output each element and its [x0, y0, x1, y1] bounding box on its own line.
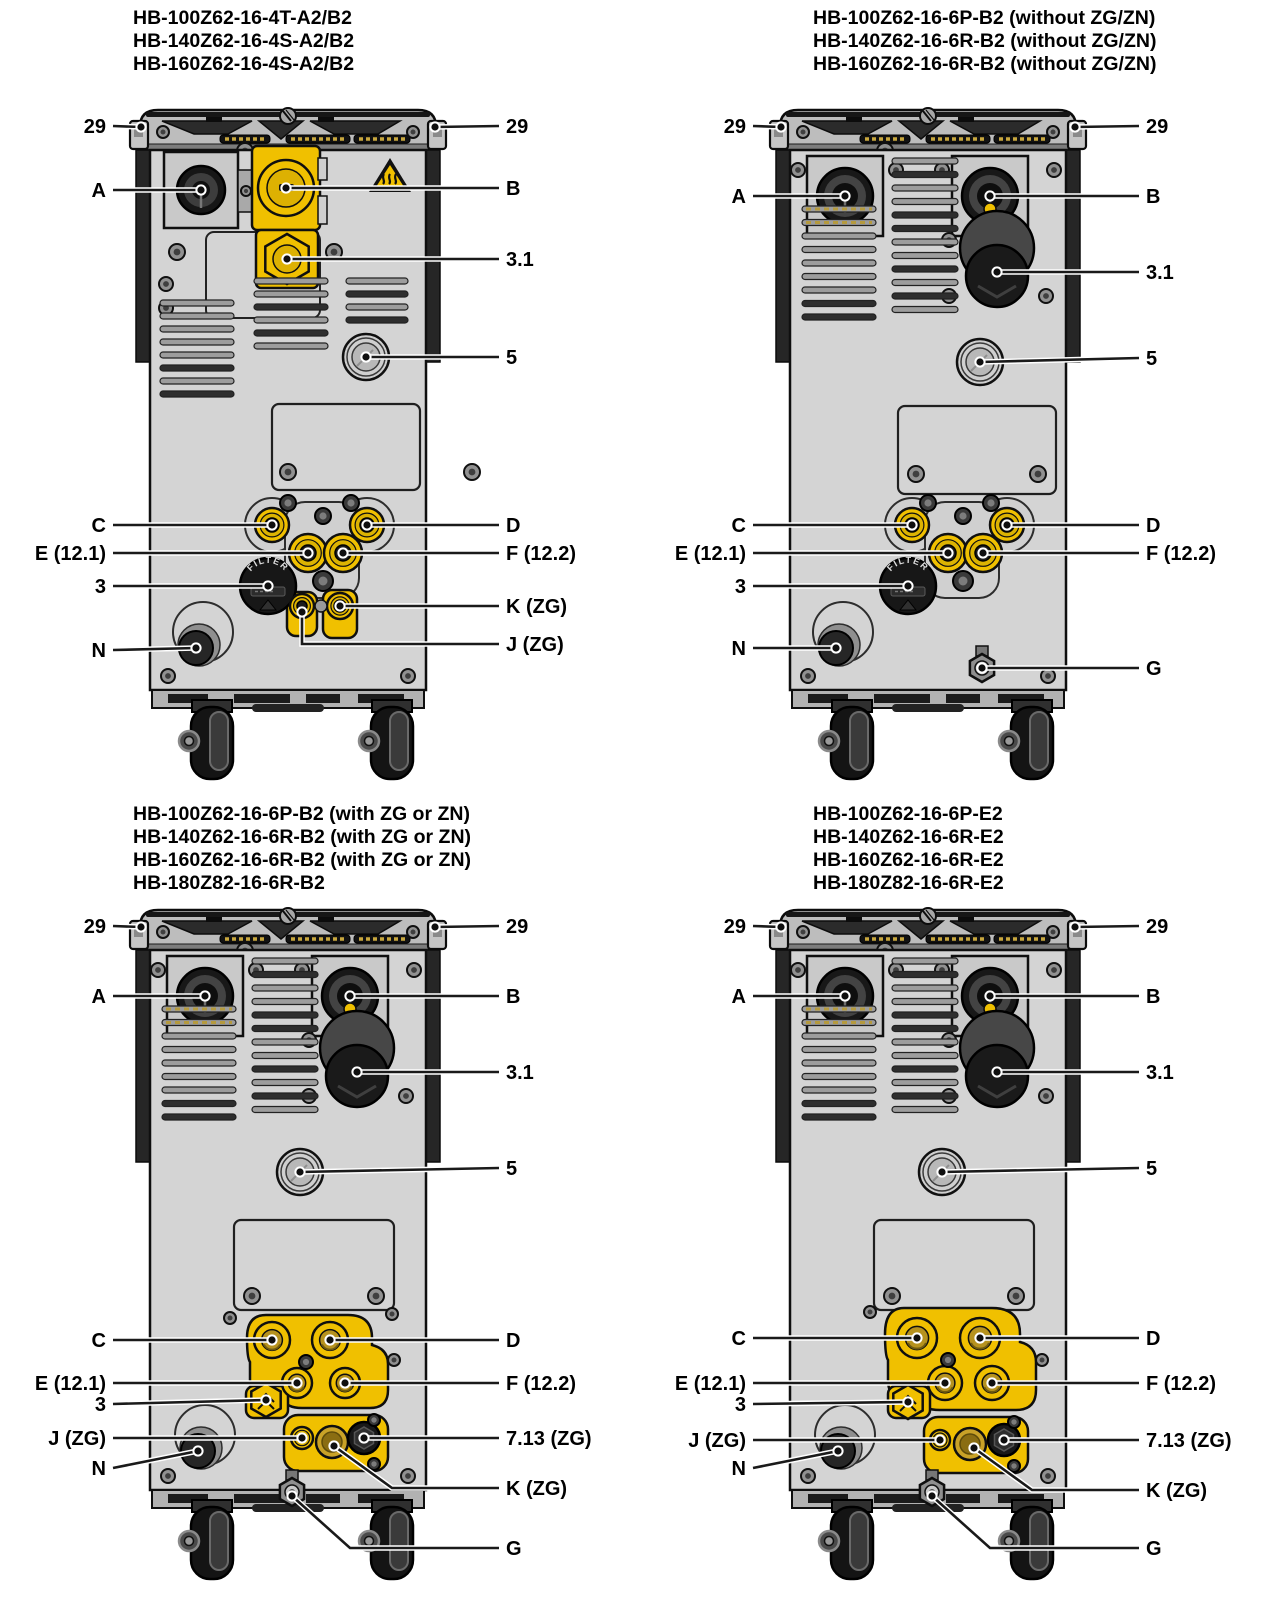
callout-label: A: [732, 986, 746, 1008]
caster-left: [819, 1500, 873, 1579]
callout-dot: [940, 1378, 949, 1387]
caster-right: [999, 1500, 1053, 1579]
callout-dot: [200, 991, 209, 1000]
side-wall-left: [776, 150, 790, 362]
callout-label: 29: [506, 116, 528, 138]
callout-label: K (ZG): [1146, 1480, 1207, 1502]
caster-left: [179, 1500, 233, 1579]
side-wall-right: [1066, 950, 1080, 1162]
callout-label: G: [1146, 658, 1162, 680]
machine-diagram-top-right: FILTER2929AB3.15CDE (12.1)F (12.2)3NG: [640, 0, 1280, 800]
model-title-block: HB-100Z62-16-6P-E2HB-140Z62-16-6R-E2HB-1…: [813, 803, 1004, 895]
title-line: HB-160Z62-16-6R-B2 (with ZG or ZN): [133, 849, 471, 872]
callout-dot: [282, 254, 291, 263]
caster-left: [819, 700, 873, 779]
callout-label: E (12.1): [35, 1373, 106, 1395]
callout-dot: [292, 1378, 301, 1387]
side-wall-left: [776, 950, 790, 1162]
callout-dot: [352, 1067, 361, 1076]
callout-label: B: [506, 178, 520, 200]
caster-right: [999, 700, 1053, 779]
callout-label: E (12.1): [675, 1373, 746, 1395]
title-line: HB-180Z82-16-6R-E2: [813, 872, 1004, 895]
callout-label: 29: [1146, 116, 1168, 138]
callout-label: A: [732, 186, 746, 208]
access-panel: [234, 1220, 394, 1310]
callout-dot: [978, 548, 987, 557]
callout-dot: [840, 191, 849, 200]
panel-bottom-right: 2929AB3.15CDE (12.1)F (12.2)3J (ZG)7.13 …: [640, 800, 1280, 1600]
callout-dot: [430, 922, 439, 931]
title-line: HB-160Z62-16-6R-B2 (without ZG/ZN): [813, 53, 1156, 76]
title-line: HB-140Z62-16-6R-B2 (with ZG or ZN): [133, 826, 471, 849]
callout-label: C: [92, 515, 106, 537]
callout-label: 3.1: [1146, 262, 1174, 284]
plug-3-1: [960, 1011, 1034, 1107]
callout-label: N: [732, 1458, 746, 1480]
callout-dot: [975, 1333, 984, 1342]
model-title-block: HB-100Z62-16-4T-A2/B2HB-140Z62-16-4S-A2/…: [133, 7, 354, 76]
title-line: HB-160Z62-16-6R-E2: [813, 849, 1004, 872]
title-line: HB-140Z62-16-4S-A2/B2: [133, 30, 354, 53]
vent-grille-left: [802, 1006, 876, 1120]
machine-diagram-bottom-left: 2929AB3.15CDE (12.1)F (12.2)3J (ZG)7.13 …: [0, 800, 640, 1600]
callout-label: 3: [735, 576, 746, 598]
manual-diagram-page: FILTER2929AB3.15CDE (12.1)F (12.2)3K (ZG…: [0, 0, 1280, 1600]
callout-label: J (ZG): [506, 634, 564, 656]
callout-dot: [263, 581, 272, 590]
title-line: HB-100Z62-16-6P-B2 (without ZG/ZN): [813, 7, 1156, 30]
top-cap: [780, 908, 1076, 950]
callout-dot: [987, 1378, 996, 1387]
callout-label: 3: [735, 1394, 746, 1416]
access-panel: [898, 406, 1056, 494]
top-cap: [140, 108, 436, 150]
machine-diagram-top-left: FILTER2929AB3.15CDE (12.1)F (12.2)3K (ZG…: [0, 0, 640, 800]
callout-dot: [1070, 122, 1079, 131]
machine-rear-view: [130, 908, 446, 1579]
machine-rear-view: FILTER: [130, 108, 480, 779]
callout-dot: [776, 122, 785, 131]
callout-dot: [977, 663, 986, 672]
callout-label: 29: [724, 916, 746, 938]
title-line: HB-100Z62-16-6P-E2: [813, 803, 1004, 826]
title-line: HB-140Z62-16-6R-B2 (without ZG/ZN): [813, 30, 1156, 53]
callout-dot: [833, 1446, 842, 1455]
callout-label: 29: [724, 116, 746, 138]
callout-dot: [985, 191, 994, 200]
plug-3-1: [320, 1011, 394, 1107]
title-line: HB-160Z62-16-4S-A2/B2: [133, 53, 354, 76]
callout-dot: [287, 1491, 296, 1500]
model-title-block: HB-100Z62-16-6P-B2 (with ZG or ZN)HB-140…: [133, 803, 471, 895]
callout-dot: [992, 267, 1001, 276]
title-line: HB-100Z62-16-4T-A2/B2: [133, 7, 354, 30]
callout-label: 29: [84, 116, 106, 138]
callout-label: E (12.1): [675, 543, 746, 565]
callout-dot: [329, 1441, 338, 1450]
callout-label: 5: [506, 1158, 517, 1180]
callout-label: N: [92, 640, 106, 662]
callout-dot: [937, 1167, 946, 1176]
access-panel: [874, 1220, 1034, 1310]
callout-dot: [840, 991, 849, 1000]
callout-label: 5: [1146, 348, 1157, 370]
caster-right: [359, 700, 413, 779]
callout-label: 3.1: [1146, 1062, 1174, 1084]
plug-3-1: [960, 211, 1034, 307]
callout-label: D: [506, 1330, 520, 1352]
callout-label: K (ZG): [506, 1478, 567, 1500]
callout-label: J (ZG): [688, 1430, 746, 1452]
callout-label: D: [1146, 1328, 1160, 1350]
callout-label: D: [506, 515, 520, 537]
callout-dot: [999, 1435, 1008, 1444]
callout-dot: [903, 1397, 912, 1406]
callout-dot: [430, 122, 439, 131]
callout-label: F (12.2): [506, 1373, 576, 1395]
callout-label: 29: [506, 916, 528, 938]
callout-label: J (ZG): [48, 1428, 106, 1450]
callout-dot: [295, 1167, 304, 1176]
callout-label: 3: [95, 1394, 106, 1416]
machine-rear-view: [770, 908, 1086, 1579]
callout-label: F (12.2): [506, 543, 576, 565]
side-wall-left: [136, 150, 150, 362]
callout-dot: [193, 1446, 202, 1455]
callout-dot: [335, 601, 344, 610]
callout-dot: [196, 185, 205, 194]
access-panel: [272, 404, 480, 490]
callout-dot: [191, 643, 200, 652]
callout-dot: [340, 1378, 349, 1387]
callout-label: 3.1: [506, 1062, 534, 1084]
callout-dot: [325, 1335, 334, 1344]
callout-dot: [927, 1491, 936, 1500]
callout-label: B: [506, 986, 520, 1008]
callout-label: F (12.2): [1146, 1373, 1216, 1395]
callout-dot: [907, 520, 916, 529]
callout-dot: [1002, 520, 1011, 529]
callout-dot: [345, 991, 354, 1000]
callout-label: 3.1: [506, 249, 534, 271]
callout-dot: [361, 352, 370, 361]
callout-label: C: [732, 1328, 746, 1350]
callout-dot: [831, 643, 840, 652]
callout-label: A: [92, 180, 106, 202]
callout-label: B: [1146, 986, 1160, 1008]
caster-left: [179, 700, 233, 779]
callout-dot: [985, 991, 994, 1000]
callout-dot: [338, 548, 347, 557]
callout-label: G: [1146, 1538, 1162, 1560]
callout-label: 3: [95, 576, 106, 598]
callout-dot: [136, 122, 145, 131]
callout-label: B: [1146, 186, 1160, 208]
callout-dot: [912, 1333, 921, 1342]
callout-label: 7.13 (ZG): [1146, 1430, 1232, 1452]
callout-label: 5: [506, 347, 517, 369]
callout-dot: [297, 607, 306, 616]
side-wall-right: [426, 150, 440, 362]
side-wall-right: [426, 950, 440, 1162]
callout-dot: [303, 548, 312, 557]
callout-label: 29: [1146, 916, 1168, 938]
title-line: HB-140Z62-16-6R-E2: [813, 826, 1004, 849]
callout-label: C: [732, 515, 746, 537]
callout-label: G: [506, 1538, 522, 1560]
callout-label: 7.13 (ZG): [506, 1428, 592, 1450]
side-wall-right: [1066, 150, 1080, 362]
callout-label: 29: [84, 916, 106, 938]
callout-dot: [267, 1335, 276, 1344]
machine-rear-view: FILTER: [770, 108, 1086, 779]
callout-dot: [267, 520, 276, 529]
callout-label: D: [1146, 515, 1160, 537]
panel-top-left: FILTER2929AB3.15CDE (12.1)F (12.2)3K (ZG…: [0, 0, 640, 800]
callout-dot: [1070, 922, 1079, 931]
callout-dot: [281, 183, 290, 192]
callout-dot: [297, 1433, 306, 1442]
callout-dot: [136, 922, 145, 931]
callout-label: C: [92, 1330, 106, 1352]
model-title-block: HB-100Z62-16-6P-B2 (without ZG/ZN)HB-140…: [813, 7, 1156, 76]
callout-label: E (12.1): [35, 543, 106, 565]
callout-label: N: [732, 638, 746, 660]
caster-right: [359, 1500, 413, 1579]
callout-label: N: [92, 1458, 106, 1480]
callout-dot: [935, 1435, 944, 1444]
side-wall-left: [136, 950, 150, 1162]
callout-label: A: [92, 986, 106, 1008]
top-cap: [780, 108, 1076, 150]
title-line: HB-100Z62-16-6P-B2 (with ZG or ZN): [133, 803, 471, 826]
machine-diagram-bottom-right: 2929AB3.15CDE (12.1)F (12.2)3J (ZG)7.13 …: [640, 800, 1280, 1600]
vent-grille-left: [162, 1006, 236, 1120]
callout-label: 5: [1146, 1158, 1157, 1180]
callout-dot: [903, 581, 912, 590]
title-line: HB-180Z82-16-6R-B2: [133, 872, 471, 895]
callout-dot: [261, 1395, 270, 1404]
callout-dot: [992, 1067, 1001, 1076]
panel-top-right: FILTER2929AB3.15CDE (12.1)F (12.2)3NG HB…: [640, 0, 1280, 800]
panel-bottom-left: 2929AB3.15CDE (12.1)F (12.2)3J (ZG)7.13 …: [0, 800, 640, 1600]
callout-dot: [359, 1433, 368, 1442]
callout-dot: [943, 548, 952, 557]
callout-label: K (ZG): [506, 596, 567, 618]
top-cap: [140, 908, 436, 950]
callout-dot: [975, 357, 984, 366]
callout-label: F (12.2): [1146, 543, 1216, 565]
callout-dot: [776, 922, 785, 931]
vent-grille-left: [802, 206, 876, 320]
callout-dot: [969, 1443, 978, 1452]
callout-dot: [362, 520, 371, 529]
